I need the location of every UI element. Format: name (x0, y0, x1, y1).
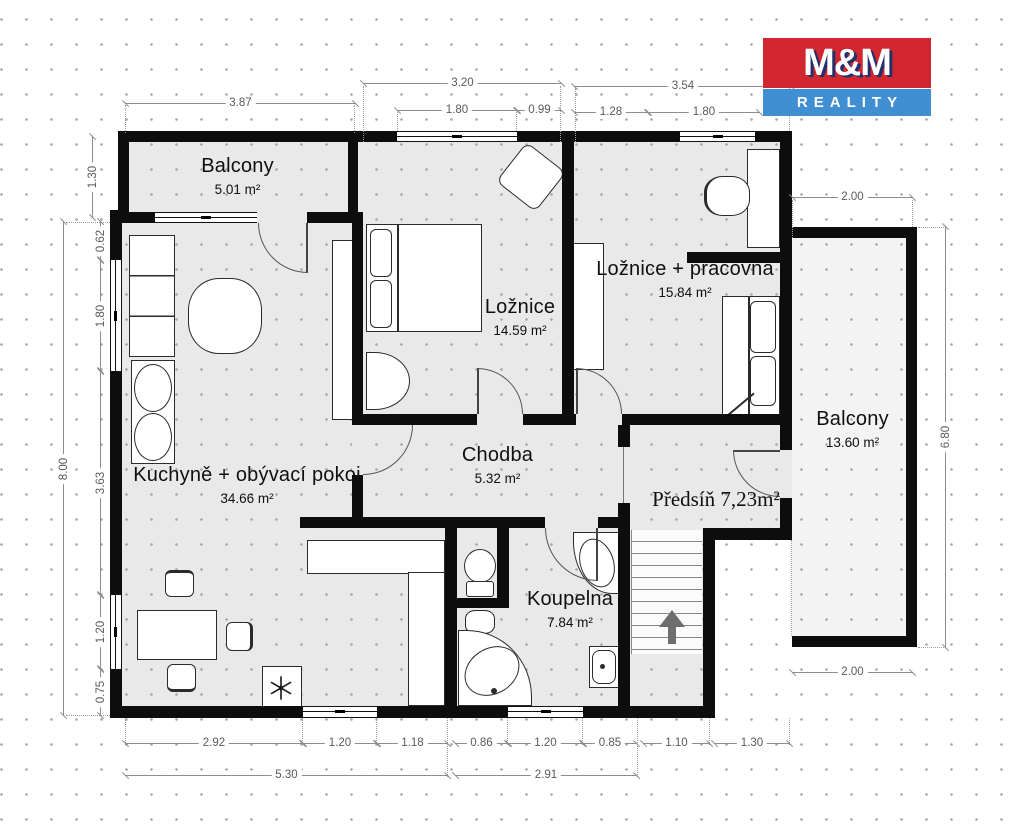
bed-line (748, 297, 750, 419)
wall (792, 227, 917, 238)
dimension: 8.00 (63, 222, 64, 715)
passage-line (623, 447, 624, 503)
desk-chair (704, 176, 750, 216)
dimension: 1.10 (643, 743, 710, 744)
dining-table (137, 610, 217, 660)
extension-line (792, 200, 793, 238)
dimension: 3.63 (100, 371, 101, 595)
room-name: Balcony (140, 155, 335, 178)
stairs-up-arrow-icon (659, 610, 685, 627)
extension-line (709, 718, 710, 745)
passage-opening (618, 447, 630, 503)
extension-line (789, 718, 790, 745)
logo-mm-text: M&M (763, 38, 931, 88)
chair (165, 570, 194, 597)
dimension: 5.30 (125, 775, 448, 776)
dimension: 2.00 (792, 672, 913, 673)
dimension-value: 0.86 (466, 736, 496, 750)
room-area: 7.84 m² (505, 615, 635, 630)
kitchen-counter (307, 540, 445, 574)
wall (348, 131, 358, 223)
dimension-value: 0.75 (94, 677, 108, 707)
wall (445, 517, 457, 706)
extension-line (912, 200, 913, 227)
room-label-kuchyne: Kuchyně + obývací pokoj 34.66 m² (130, 464, 364, 506)
door-opening (257, 212, 307, 223)
door-opening (545, 517, 598, 528)
dimension-value: 6.80 (939, 422, 953, 452)
extension-line (560, 86, 561, 142)
wall (703, 528, 715, 718)
dimension: 2.92 (125, 743, 303, 744)
extension-line (397, 112, 398, 131)
extension-line (516, 112, 517, 131)
stairs-up-arrow-icon (668, 626, 676, 644)
room-area: 34.66 m² (130, 491, 364, 506)
dimension-value: 1.18 (397, 736, 427, 750)
dimension: 1.80 (397, 110, 517, 111)
wall (562, 142, 574, 414)
window (303, 706, 377, 718)
dimension: 3.87 (125, 103, 356, 104)
dimension-value: 1.30 (737, 736, 767, 750)
dimension: 0.62 (100, 222, 101, 260)
dimension-value: 0.99 (524, 103, 554, 117)
chair (226, 622, 253, 651)
dimension: 1.20 (303, 743, 377, 744)
dimension-value: 1.20 (325, 736, 355, 750)
toilet (464, 549, 496, 583)
dimension: 2.00 (792, 197, 913, 198)
dimension: 1.20 (508, 743, 583, 744)
room-area: 5.01 m² (140, 182, 335, 197)
sofa-cushion (134, 364, 172, 412)
dimension-value: 1.30 (86, 162, 100, 192)
bed-line (397, 225, 399, 331)
dimension-value: 1.80 (442, 103, 472, 117)
extension-line (125, 105, 126, 133)
dimension: 0.85 (583, 743, 637, 744)
dimension-value: 3.54 (668, 79, 698, 93)
sofa-cushion (134, 413, 172, 461)
snowflake-icon (267, 674, 295, 702)
dimension-value: 1.10 (661, 736, 691, 750)
dimension: 1.80 (100, 260, 101, 371)
staircase (631, 530, 702, 654)
dimension-value: 8.00 (57, 453, 71, 483)
dimension: 0.75 (100, 669, 101, 715)
door-opening (477, 414, 523, 425)
faucet-dot (600, 664, 605, 669)
mm-reality-logo: M&M REALITY (763, 38, 931, 116)
dimension: 3.20 (363, 83, 562, 84)
extension-line (363, 86, 364, 142)
extension-line (918, 647, 944, 648)
extension-line (637, 718, 638, 777)
dimension: 3.54 (574, 86, 792, 87)
pillow (370, 280, 392, 328)
dimension: 0.86 (455, 743, 508, 744)
dimension-value: 3.20 (447, 76, 477, 90)
chair (167, 664, 196, 692)
pillow (750, 301, 776, 353)
dimension: 1.30 (92, 137, 93, 217)
dimension-value: 0.62 (94, 226, 108, 256)
dimension: 1.28 (574, 112, 648, 113)
room-label-koupelna: Koupelna 7.84 m² (505, 588, 635, 630)
dimension: 1.80 (648, 112, 760, 113)
room-area: 15.84 m² (583, 285, 787, 300)
room-label-pracovna: Ložnice + pracovna 15.84 m² (583, 258, 787, 300)
room-name: Ložnice + pracovna (583, 258, 787, 281)
extension-line (125, 718, 126, 745)
kitchen-counter (408, 572, 445, 706)
room-label-balcony-tl: Balcony 5.01 m² (140, 155, 335, 197)
wardrobe (332, 240, 354, 420)
room-area: 13.60 m² (795, 435, 910, 450)
dimension-value: 0.85 (595, 736, 625, 750)
room-label-loznice: Ložnice 14.59 m² (455, 296, 585, 338)
extension-line (354, 105, 355, 133)
wall-stub (457, 598, 509, 608)
dimension-value: 2.00 (837, 665, 867, 679)
dimension: 1.20 (100, 595, 101, 669)
room-label-chodba: Chodba 5.32 m² (440, 444, 555, 486)
dimension: 6.80 (945, 227, 946, 647)
floor-plan: Balcony 5.01 m² Ložnice 14.59 m² Ložnice… (0, 0, 1024, 837)
logo-reality-text: REALITY (763, 89, 931, 116)
room-area: 5.32 m² (440, 471, 555, 486)
room-name: Kuchyně + obývací pokoj (130, 464, 364, 487)
dimension: 0.99 (517, 110, 562, 111)
balcony-open-edge (791, 540, 792, 636)
dimension-value: 3.63 (94, 468, 108, 498)
sofa (129, 235, 175, 357)
window (110, 260, 122, 371)
room-name: Koupelna (505, 588, 635, 611)
round-table (188, 278, 262, 354)
room-label-balcony-right: Balcony 13.60 m² (795, 408, 910, 450)
dimension: 1.18 (377, 743, 448, 744)
dimension-value: 3.87 (225, 96, 255, 110)
window (508, 706, 583, 718)
wall (110, 706, 715, 718)
dimension-value: 2.91 (531, 768, 561, 782)
dimension-value: 2.92 (199, 736, 229, 750)
window (155, 212, 257, 223)
dimension: 2.91 (455, 775, 637, 776)
dimension-value: 1.20 (94, 617, 108, 647)
dimension-value: 2.00 (837, 190, 867, 204)
dimension-value: 1.20 (530, 736, 560, 750)
window (680, 131, 755, 142)
extension-line (66, 715, 110, 716)
extension-line (918, 227, 944, 228)
dimension-value: 1.28 (596, 105, 626, 119)
desk (747, 149, 780, 248)
toilet-tank (466, 581, 494, 597)
window (110, 595, 122, 669)
pillow (370, 229, 392, 277)
room-name: Balcony (795, 408, 910, 431)
dimension-value: 5.30 (271, 768, 301, 782)
room-label-predsin: Předsíň 7,23m² (636, 487, 796, 512)
door-opening (576, 414, 622, 425)
dimension-value: 1.80 (689, 105, 719, 119)
dimension-value: 1.80 (94, 300, 108, 330)
wall (703, 528, 792, 540)
pillow (750, 356, 776, 406)
wall (792, 636, 917, 647)
room-area: 14.59 m² (455, 323, 585, 338)
extension-line (447, 718, 448, 777)
room-name: Předsíň 7,23m² (652, 487, 780, 511)
drain-dot (491, 688, 497, 694)
room-name: Ložnice (455, 296, 585, 319)
dimension: 1.30 (714, 743, 790, 744)
window (397, 131, 517, 142)
room-name: Chodba (440, 444, 555, 467)
